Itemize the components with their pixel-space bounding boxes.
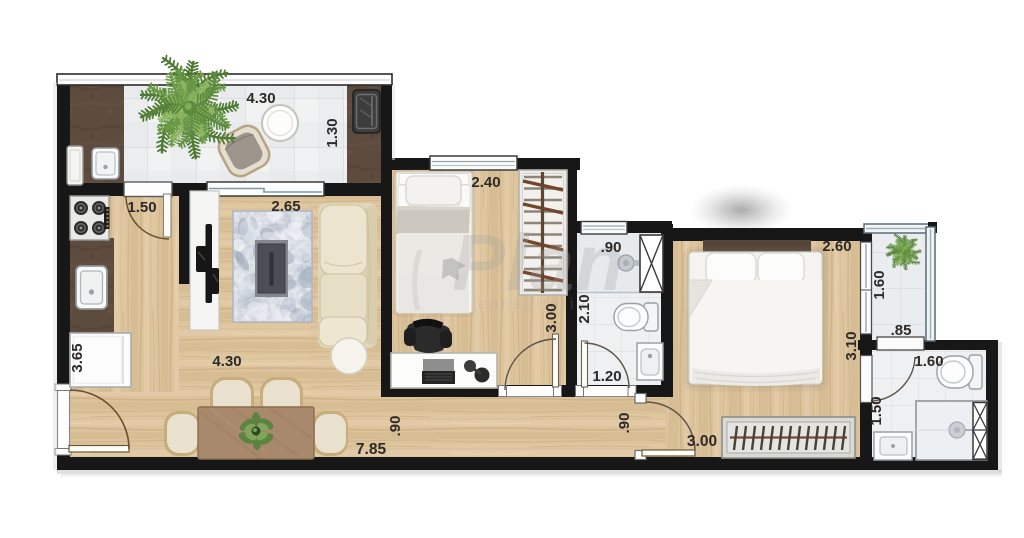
svg-text:.90: .90 (387, 416, 404, 437)
svg-text:2.60: 2.60 (822, 238, 851, 255)
svg-text:4.30: 4.30 (212, 353, 241, 370)
svg-text:1.20: 1.20 (592, 368, 621, 385)
svg-text:.90: .90 (616, 413, 633, 434)
svg-text:2.65: 2.65 (271, 198, 300, 215)
svg-text:3.00: 3.00 (543, 303, 560, 332)
svg-text:1.50: 1.50 (127, 199, 156, 216)
svg-text:consultoria: consultoria (478, 296, 588, 313)
svg-text:1.60: 1.60 (871, 270, 888, 299)
svg-text:7.85: 7.85 (356, 441, 387, 458)
svg-text:Plan: Plan (452, 218, 625, 307)
svg-text:1.30: 1.30 (324, 118, 341, 147)
svg-text:3.10: 3.10 (843, 331, 860, 360)
svg-text:3.00: 3.00 (687, 433, 717, 450)
svg-text:3.65: 3.65 (69, 343, 86, 372)
svg-text:2.40: 2.40 (471, 174, 500, 191)
svg-text:1.50: 1.50 (868, 396, 885, 425)
svg-text:1.60: 1.60 (914, 353, 943, 370)
svg-text:.90: .90 (601, 239, 622, 256)
svg-text:.85: .85 (891, 322, 912, 339)
svg-text:4.30: 4.30 (246, 90, 275, 107)
svg-text:2.10: 2.10 (576, 294, 593, 323)
